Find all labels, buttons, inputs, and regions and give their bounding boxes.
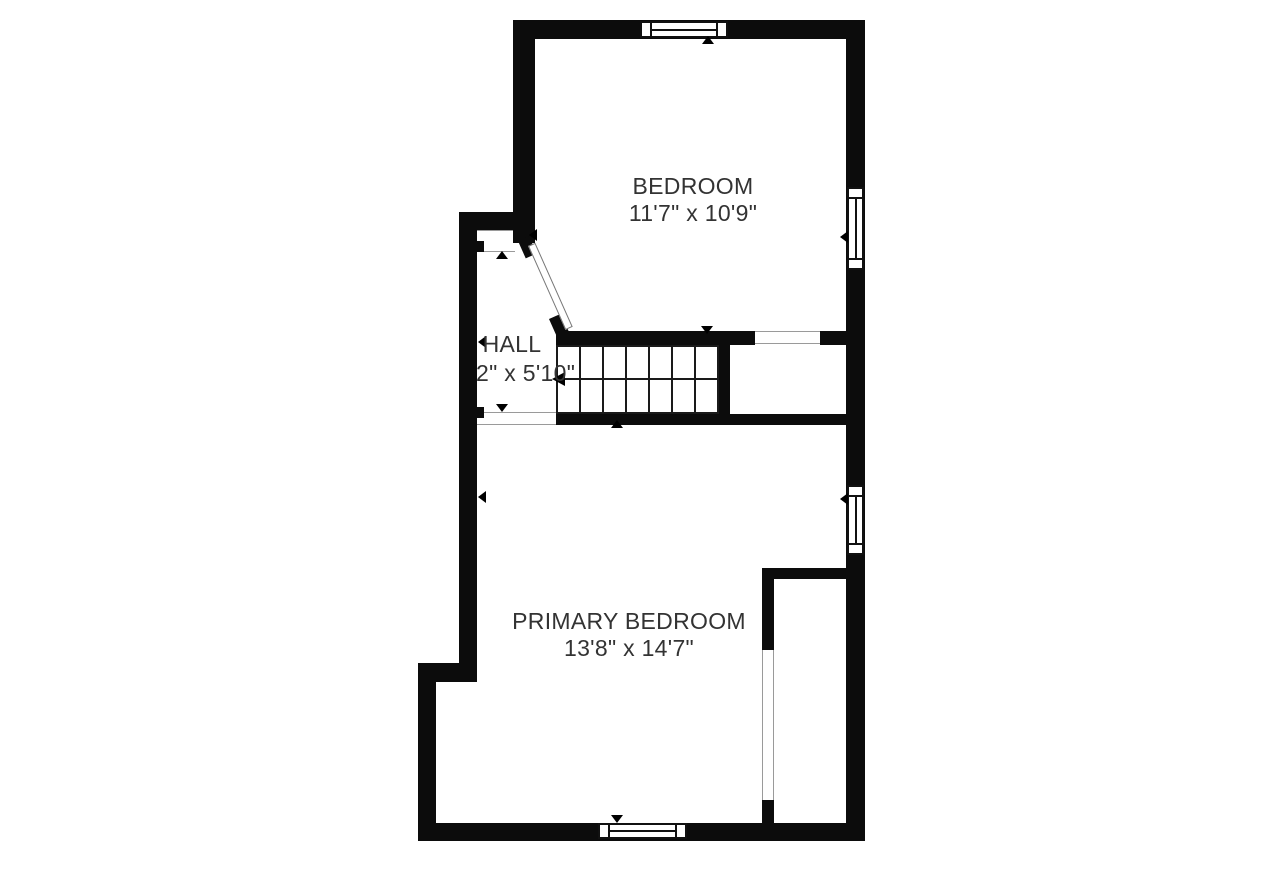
window-pane-line bbox=[651, 29, 717, 31]
door-marker-icon bbox=[529, 229, 537, 241]
room-label-bedroom: BEDROOM 11'7" x 10'9" bbox=[629, 173, 757, 227]
opening-hall-to-primary bbox=[477, 412, 556, 425]
opening-marker-icon bbox=[611, 420, 623, 428]
window-marker-icon bbox=[840, 493, 848, 505]
wall-lower-left bbox=[418, 663, 436, 841]
window-marker-icon bbox=[611, 815, 623, 823]
wall-stair-right bbox=[719, 331, 730, 425]
door-jamb-hall-left bbox=[477, 241, 484, 252]
wall-hall-left bbox=[459, 212, 477, 682]
floor-plan-canvas: BEDROOM 11'7" x 10'9" HALL 2" x 5'10" PR… bbox=[0, 0, 1280, 879]
room-label-primary-bedroom: PRIMARY BEDROOM 13'8" x 14'7" bbox=[512, 608, 746, 662]
door-marker-icon bbox=[496, 251, 508, 259]
window-top bbox=[640, 21, 728, 38]
stair-direction-line bbox=[564, 378, 718, 380]
opening-marker-icon bbox=[701, 326, 713, 334]
wall-right bbox=[846, 20, 865, 841]
room-dimensions-hall: 2" x 5'10" bbox=[476, 360, 575, 387]
room-dimensions: 2" x 5'10" bbox=[476, 360, 575, 387]
window-marker-icon bbox=[702, 36, 714, 44]
jamb-hall-opening bbox=[477, 407, 484, 418]
wall-stair-top-right bbox=[820, 331, 846, 345]
room-dimensions: 11'7" x 10'9" bbox=[629, 200, 757, 227]
door-leaf bbox=[528, 243, 573, 330]
wall-closet-stub bbox=[762, 800, 774, 823]
wall-bedroom-left bbox=[513, 20, 535, 230]
window-primary-right bbox=[847, 485, 864, 555]
window-bedroom-right bbox=[847, 187, 864, 270]
wall-closet-top bbox=[762, 568, 846, 579]
wall-closet-left bbox=[762, 568, 774, 650]
wall-stair-bottom bbox=[556, 414, 846, 425]
opening-marker-icon bbox=[496, 404, 508, 412]
window-marker-icon bbox=[840, 231, 848, 243]
window-bottom bbox=[598, 823, 687, 839]
opening-bedroom-to-landing bbox=[755, 331, 820, 344]
room-label-hall: HALL bbox=[483, 331, 542, 358]
opening-marker-icon bbox=[478, 491, 486, 503]
opening-closet bbox=[762, 650, 774, 800]
window-pane-line bbox=[609, 830, 676, 832]
window-pane-line bbox=[855, 198, 857, 259]
room-dimensions: 13'8" x 14'7" bbox=[512, 635, 746, 662]
window-pane-line bbox=[855, 496, 857, 544]
room-name: HALL bbox=[483, 331, 542, 358]
room-name: BEDROOM bbox=[629, 173, 757, 200]
room-name: PRIMARY BEDROOM bbox=[512, 608, 746, 635]
